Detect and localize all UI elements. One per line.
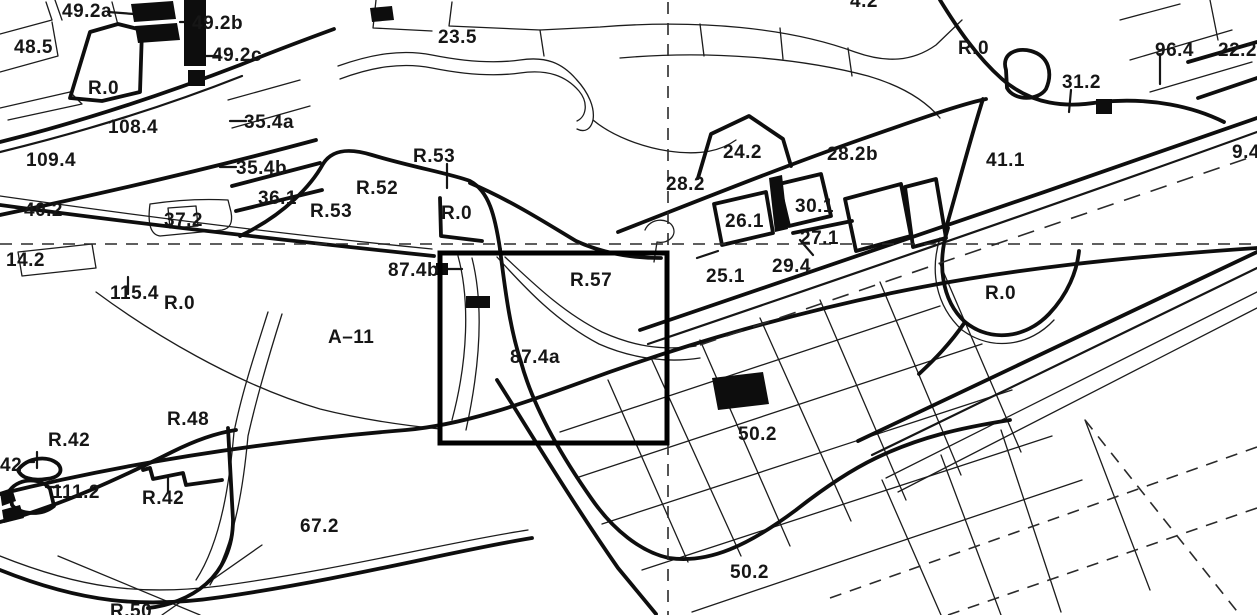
map-label-r0-center: R.0	[441, 203, 472, 225]
map-label-r0-right: R.0	[985, 283, 1016, 305]
map-label-49-2a: 49.2a	[62, 1, 112, 23]
map-label-23-5: 23.5	[438, 27, 477, 49]
map-label-r52: R.52	[356, 178, 398, 200]
map-label-r50: R.50	[110, 601, 152, 615]
map-label-r48: R.48	[167, 409, 209, 431]
map-label-42-edge: 42	[0, 455, 22, 477]
map-label-50-2-lower: 50.2	[730, 562, 769, 584]
map-label-28-2b: 28.2b	[827, 144, 878, 166]
map-label-87-4a: 87.4a	[510, 347, 560, 369]
map-label-24-2: 24.2	[723, 142, 762, 164]
map-labels-layer: 49.2a48.549.2b49.2cR.0108.4109.435.4a35.…	[0, 0, 1257, 615]
map-label-49-2c: 49.2c	[212, 45, 262, 67]
map-label-48-5: 48.5	[14, 37, 53, 59]
map-label-29-4: 29.4	[772, 256, 811, 278]
map-label-27-1: 27.1	[800, 228, 839, 250]
map-label-r53-lower: R.53	[310, 201, 352, 223]
map-label-a-11: A–11	[328, 327, 374, 349]
map-label-67-2: 67.2	[300, 516, 339, 538]
map-label-108-4: 108.4	[108, 117, 158, 139]
map-label-37-2: 37.2	[164, 210, 203, 232]
map-label-109-4: 109.4	[26, 150, 76, 172]
map-label-r53-upper: R.53	[413, 146, 455, 168]
map-label-r57: R.57	[570, 270, 612, 292]
map-label-25-1: 25.1	[706, 266, 745, 288]
map-label-50-2-upper: 50.2	[738, 424, 777, 446]
map-label-r0-left: R.0	[164, 293, 195, 315]
map-label-22-2: 22.2	[1218, 40, 1257, 62]
map-label-36-1: 36.1	[258, 188, 297, 210]
map-label-87-4b: 87.4b	[388, 260, 439, 282]
map-label-111-2: 111.2	[52, 482, 100, 504]
map-label-28-2: 28.2	[666, 174, 705, 196]
map-label-r42-upper: R.42	[48, 430, 90, 452]
map-label-30-1: 30.1	[795, 196, 834, 218]
map-label-35-4a: 35.4a	[244, 112, 294, 134]
map-label-41-1: 41.1	[986, 150, 1025, 172]
map-label-9-4: 9.4	[1232, 142, 1257, 164]
map-label-31-2: 31.2	[1062, 72, 1101, 94]
map-label-96-4: 96.4	[1155, 40, 1194, 62]
map-label-r0-topleft: R.0	[88, 78, 119, 100]
map-label-r0-topright: R.0	[958, 38, 989, 60]
map-label-40-2: 40.2	[24, 200, 63, 222]
map-label-26-1: 26.1	[725, 211, 764, 233]
map-label-4-2-top: 4.2	[850, 0, 878, 13]
map-label-14-2: 14.2	[6, 250, 45, 272]
map-label-49-2b: 49.2b	[192, 13, 243, 35]
map-label-35-4b: 35.4b	[236, 158, 287, 180]
map-label-115-4: 115.4	[110, 283, 159, 305]
map-viewport[interactable]: 49.2a48.549.2b49.2cR.0108.4109.435.4a35.…	[0, 0, 1257, 615]
map-label-r42-lower: R.42	[142, 488, 184, 510]
